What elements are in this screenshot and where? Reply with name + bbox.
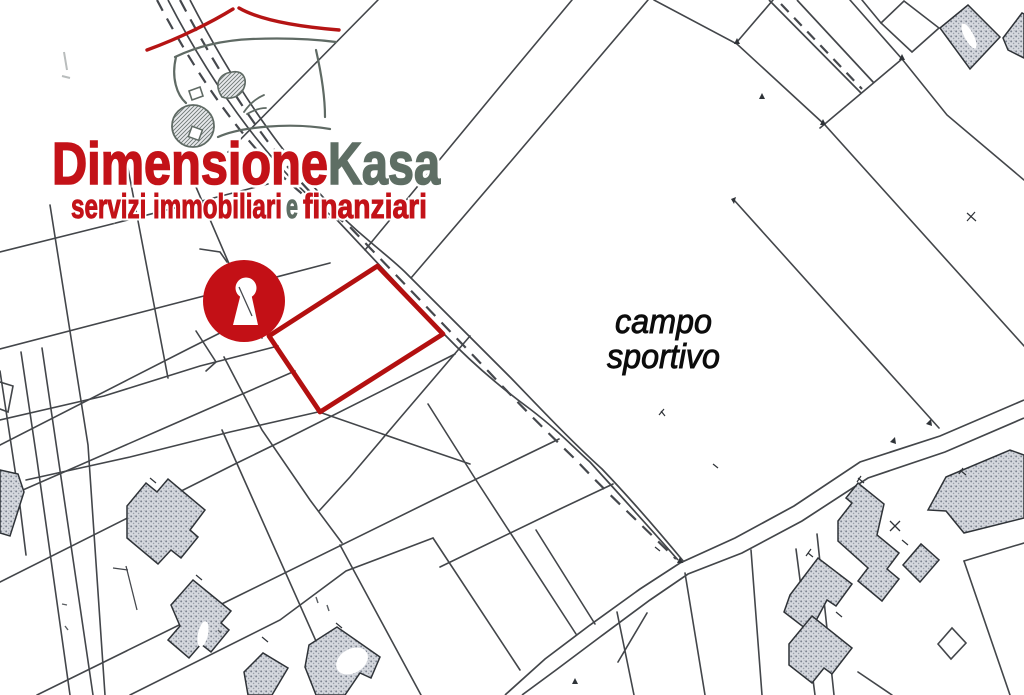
svg-text:servizi immobiliari: servizi immobiliari: [71, 188, 282, 226]
svg-text:e: e: [286, 188, 298, 226]
svg-text:sportivo: sportivo: [607, 338, 720, 376]
svg-text:campo: campo: [615, 303, 712, 341]
svg-text:finanziari: finanziari: [303, 188, 427, 226]
